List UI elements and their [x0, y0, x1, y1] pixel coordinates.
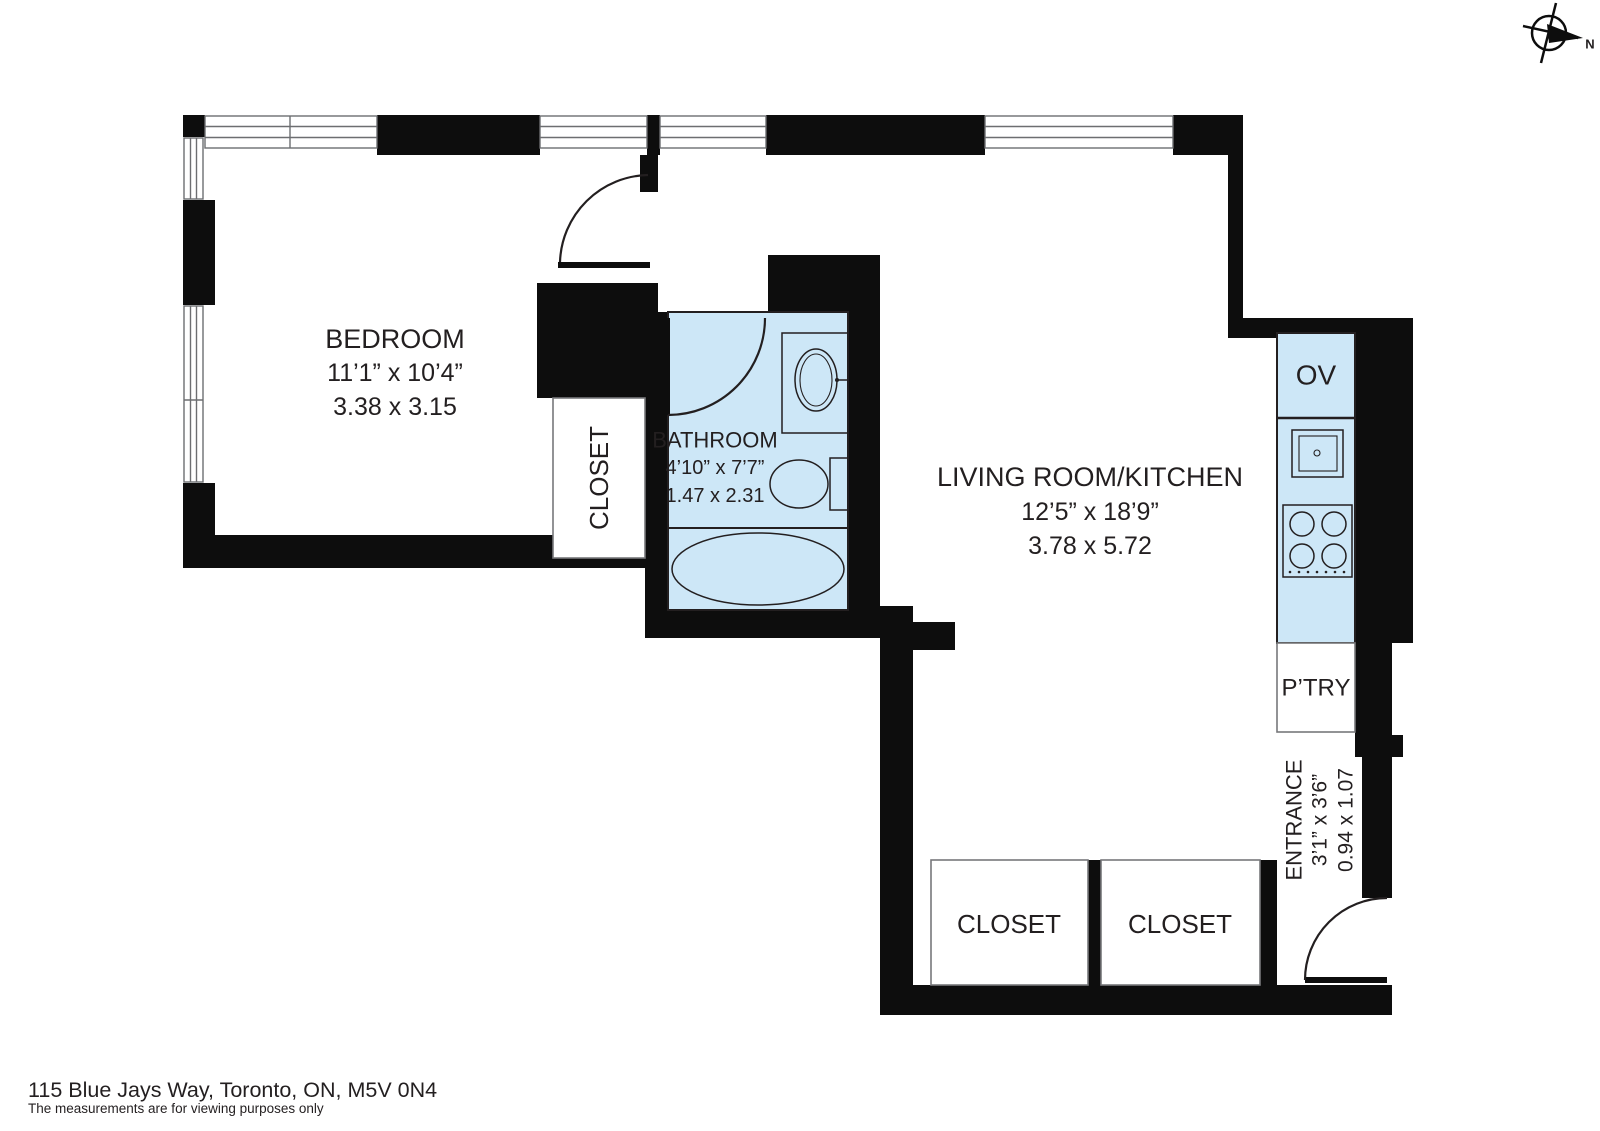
- pantry-label: P’TRY: [1282, 675, 1351, 702]
- window-living-top: [985, 116, 1173, 148]
- bedroom-size-metric: 3.38 x 3.15: [333, 393, 457, 421]
- wall-kitchen-outer: [1355, 333, 1413, 643]
- bedroom-closet-label: CLOSET: [584, 426, 614, 530]
- entrance-size-metric: 0.94 x 1.07: [1335, 768, 1358, 872]
- window-left-large: [184, 306, 203, 482]
- closet-left-label: CLOSET: [957, 909, 1061, 939]
- window-left-small: [184, 138, 203, 199]
- footer-disclaimer: The measurements are for viewing purpose…: [28, 1101, 324, 1116]
- living-kitchen-label: LIVING ROOM/KITCHEN: [937, 462, 1243, 492]
- entrance-size-imperial: 3’1” x 3’6”: [1309, 774, 1332, 866]
- floor-plan-page: N BEDROOM 11’1” x 10’4” 3.38 x 3.15 BATH…: [0, 0, 1600, 1131]
- footer: 115 Blue Jays Way, Toronto, ON, M5V 0N4 …: [28, 1078, 437, 1116]
- wall-stub-living: [913, 622, 955, 650]
- wall-entrance-right: [1362, 757, 1392, 898]
- bathroom-size-metric: 1.47 x 2.31: [666, 485, 765, 507]
- wall-entrance-step: [1355, 735, 1403, 757]
- window-top-2: [540, 116, 647, 148]
- bathroom-size-imperial: 4’10” x 7’7”: [666, 457, 765, 479]
- wall-lower-left: [880, 606, 913, 1015]
- living-kitchen-size-imperial: 12’5” x 18’9”: [1021, 498, 1159, 526]
- wall-closet-top-block: [537, 283, 658, 398]
- closet-right-label: CLOSET: [1128, 909, 1232, 939]
- oven-label: OV: [1296, 360, 1337, 391]
- living-kitchen-size-metric: 3.78 x 5.72: [1028, 532, 1152, 560]
- bathroom-label: BATHROOM: [652, 428, 777, 453]
- footer-address: 115 Blue Jays Way, Toronto, ON, M5V 0N4: [28, 1078, 437, 1102]
- entrance-door: [1305, 898, 1387, 983]
- compass-north-label: N: [1585, 37, 1594, 52]
- floor-plan-canvas: N BEDROOM 11’1” x 10’4” 3.38 x 3.15 BATH…: [0, 0, 1600, 1131]
- bedroom-size-imperial: 11’1” x 10’4”: [327, 359, 463, 387]
- wall-pantry-right: [1355, 643, 1392, 735]
- wall-closet-divider: [1088, 860, 1101, 985]
- wall-bathroom-top-right: [768, 255, 880, 317]
- window-top-3: [660, 116, 766, 148]
- bedroom-door: [558, 175, 650, 268]
- wall-bottom: [880, 985, 1392, 1015]
- entrance-label: ENTRANCE: [1282, 759, 1307, 880]
- window-bedroom-top: [205, 116, 377, 148]
- wall-closet-right: [1260, 860, 1277, 985]
- wall-bathroom-right: [848, 312, 880, 638]
- bedroom-label: BEDROOM: [325, 324, 465, 354]
- compass: N: [1523, 3, 1595, 63]
- wall-right-upper: [1228, 115, 1243, 338]
